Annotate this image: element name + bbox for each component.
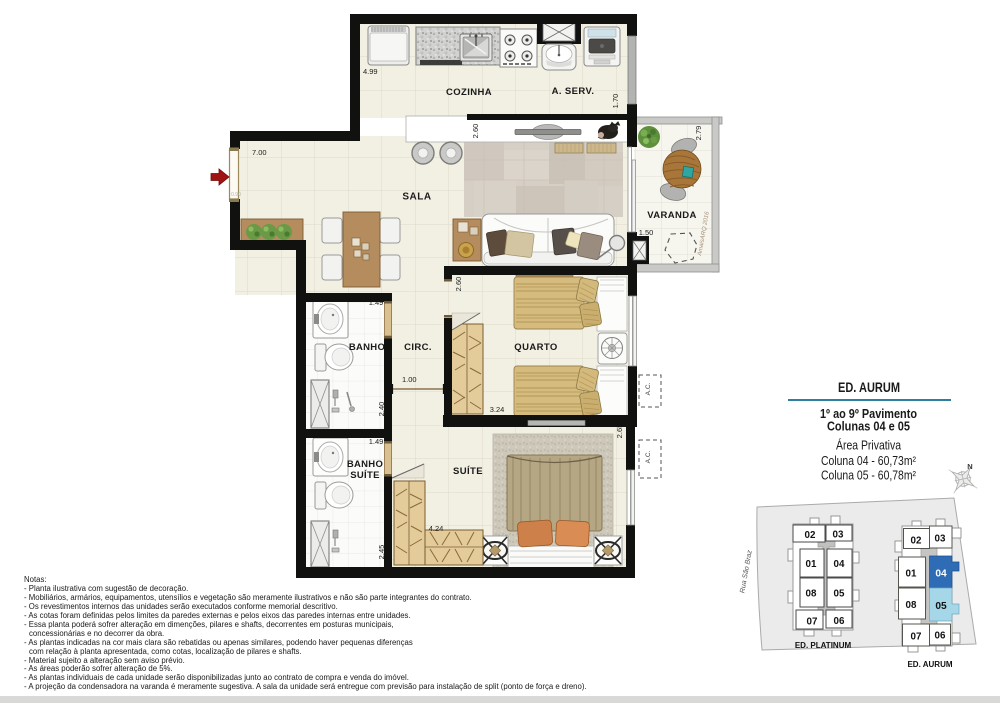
svg-text:ED. AURUM: ED. AURUM xyxy=(907,660,952,669)
svg-text:06: 06 xyxy=(935,631,946,642)
svg-text:- Planta ilustrativa com suges: - Planta ilustrativa com sugestão de dec… xyxy=(24,584,188,593)
svg-text:7.00: 7.00 xyxy=(252,148,267,157)
svg-text:4.24: 4.24 xyxy=(429,524,444,533)
svg-text:- As plantas individuais de ca: - As plantas individuais de cada unidade… xyxy=(24,673,409,682)
svg-text:07: 07 xyxy=(911,632,922,643)
svg-text:- Essa planta poderá sofrer al: - Essa planta poderá sofrer alteração em… xyxy=(24,620,394,629)
svg-text:2.60: 2.60 xyxy=(454,277,463,292)
svg-text:- Os revestimentos internos da: - Os revestimentos internos das unidades… xyxy=(24,602,338,611)
svg-text:- Mobiliários, armários, equip: - Mobiliários, armários, equipamentos, u… xyxy=(24,593,472,602)
svg-text:06: 06 xyxy=(834,616,845,627)
svg-text:ED. AURUM: ED. AURUM xyxy=(838,380,900,395)
svg-text:N: N xyxy=(967,462,972,471)
svg-text:com relação à planta apresenta: com relação à planta apresentada, como c… xyxy=(29,647,302,656)
svg-text:CIRC.: CIRC. xyxy=(404,342,432,353)
svg-text:08: 08 xyxy=(906,600,917,611)
svg-text:A.C.: A.C. xyxy=(645,382,652,395)
svg-text:SUÍTE: SUÍTE xyxy=(453,466,483,477)
svg-text:03: 03 xyxy=(935,534,946,545)
svg-text:02: 02 xyxy=(805,530,816,541)
svg-text:SALA: SALA xyxy=(402,192,431,203)
svg-text:BANHO: BANHO xyxy=(347,459,383,470)
svg-text:QUARTO: QUARTO xyxy=(514,342,557,353)
svg-text:1.50: 1.50 xyxy=(639,228,654,237)
svg-text:05: 05 xyxy=(834,589,845,600)
svg-text:01: 01 xyxy=(806,559,817,570)
svg-text:- As áreas poderão sofrer alte: - As áreas poderão sofrer alteração de 5… xyxy=(24,664,173,673)
svg-text:3.24: 3.24 xyxy=(490,405,505,414)
svg-text:1.00: 1.00 xyxy=(402,375,417,384)
svg-text:COZINHA: COZINHA xyxy=(446,87,492,98)
svg-text:0.90: 0.90 xyxy=(231,192,241,198)
svg-text:- As plantas indicadas na cor: - As plantas indicadas na cor mais clara… xyxy=(24,638,413,647)
svg-text:BANHO: BANHO xyxy=(349,342,385,353)
svg-text:02: 02 xyxy=(911,536,922,547)
svg-text:- A projeção da condensadora n: - A projeção da condensadora na varanda … xyxy=(24,682,587,691)
svg-text:A. SERV.: A. SERV. xyxy=(552,86,595,97)
svg-text:1.70: 1.70 xyxy=(611,94,620,109)
svg-text:1.49: 1.49 xyxy=(369,437,384,446)
svg-text:Coluna 04 - 60,73m²: Coluna 04 - 60,73m² xyxy=(821,454,916,468)
svg-text:01: 01 xyxy=(906,569,917,580)
svg-text:08: 08 xyxy=(806,589,817,600)
svg-text:- As cotas foram definidas pel: - As cotas foram definidas pelos limites… xyxy=(24,611,411,620)
svg-text:03: 03 xyxy=(833,530,844,541)
svg-text:Área Privativa: Área Privativa xyxy=(836,438,901,453)
svg-text:2.79: 2.79 xyxy=(694,126,703,141)
svg-text:VARANDA: VARANDA xyxy=(647,210,697,221)
svg-text:Notas:: Notas: xyxy=(24,575,47,584)
svg-text:04: 04 xyxy=(834,559,845,570)
svg-text:4.99: 4.99 xyxy=(363,67,378,76)
svg-text:05: 05 xyxy=(935,601,947,612)
svg-text:Colunas 04 e 05: Colunas 04 e 05 xyxy=(827,419,910,434)
svg-text:2.60: 2.60 xyxy=(471,124,480,139)
svg-text:04: 04 xyxy=(935,569,947,580)
svg-text:concessionárias e no decorrer: concessionárias e no decorrer da obra. xyxy=(29,629,164,638)
svg-text:Coluna 05 - 60,78m²: Coluna 05 - 60,78m² xyxy=(821,469,916,483)
svg-text:SUÍTE: SUÍTE xyxy=(350,470,379,481)
svg-text:A.C.: A.C. xyxy=(645,450,652,463)
svg-text:ED. PLATINUM: ED. PLATINUM xyxy=(795,641,852,650)
svg-text:07: 07 xyxy=(807,617,818,628)
